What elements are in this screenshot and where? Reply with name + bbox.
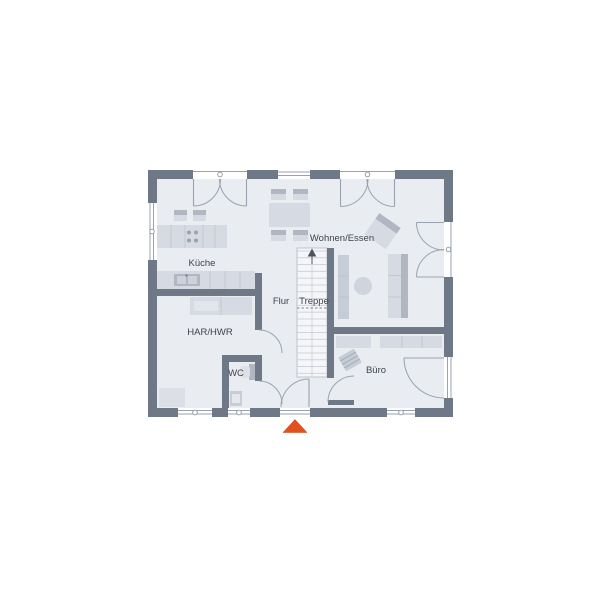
- bar-stool: [174, 210, 187, 221]
- office-door-leaf: [328, 400, 354, 405]
- room-label-kueche: Küche: [189, 258, 216, 269]
- office-shelf: [380, 336, 442, 348]
- door-marker-icon: [218, 172, 223, 177]
- wall-stair-right: [327, 248, 334, 378]
- window-left: [148, 203, 157, 260]
- dining-table: [269, 203, 310, 227]
- wall-wc-right: [255, 362, 262, 381]
- office-desk: [336, 336, 371, 348]
- window-marker-icon: [150, 229, 155, 234]
- wall-wc-left: [222, 355, 229, 408]
- side-table: [354, 277, 372, 295]
- room-label-flur: Flur: [273, 296, 289, 307]
- storage-block: [159, 388, 185, 407]
- dining-chair: [271, 189, 286, 200]
- window-bottom-office: [387, 408, 415, 417]
- window-marker-icon: [193, 410, 198, 415]
- sofa: [388, 254, 408, 318]
- room-label-wc: WC: [228, 368, 244, 379]
- tv-sideboard: [338, 255, 349, 319]
- dining-chair: [271, 230, 286, 241]
- window-marker-icon: [237, 410, 242, 415]
- sink-icon: [174, 274, 200, 286]
- wall-kitchen-utility: [157, 289, 262, 296]
- window-bottom-wc: [228, 408, 250, 417]
- floor-plan-drawing: Küche Wohnen/Essen Flur Treppe HAR/HWR W…: [0, 0, 600, 600]
- room-label-har-hwr: HAR/HWR: [187, 327, 233, 338]
- wc-sink-icon: [230, 391, 242, 406]
- dining-chair: [293, 189, 308, 200]
- washer-block: [190, 297, 252, 315]
- window-top: [278, 170, 310, 179]
- room-label-buero: Büro: [366, 365, 386, 376]
- wall-living-office: [334, 327, 444, 334]
- wall-hall-left: [255, 273, 262, 330]
- bar-stool: [193, 210, 206, 221]
- door-marker-icon: [446, 247, 451, 252]
- kitchen-island: [157, 225, 227, 248]
- entrance-arrow-icon: [283, 420, 307, 433]
- door-marker-icon: [365, 172, 370, 177]
- window-bottom-utility: [178, 408, 212, 417]
- staircase: [297, 248, 327, 377]
- room-label-wohnen-essen: Wohnen/Essen: [310, 233, 374, 244]
- floor-plan-page: Küche Wohnen/Essen Flur Treppe HAR/HWR W…: [0, 0, 600, 600]
- room-label-treppe: Treppe: [299, 296, 329, 307]
- dining-chair: [293, 230, 308, 241]
- window-marker-icon: [399, 410, 404, 415]
